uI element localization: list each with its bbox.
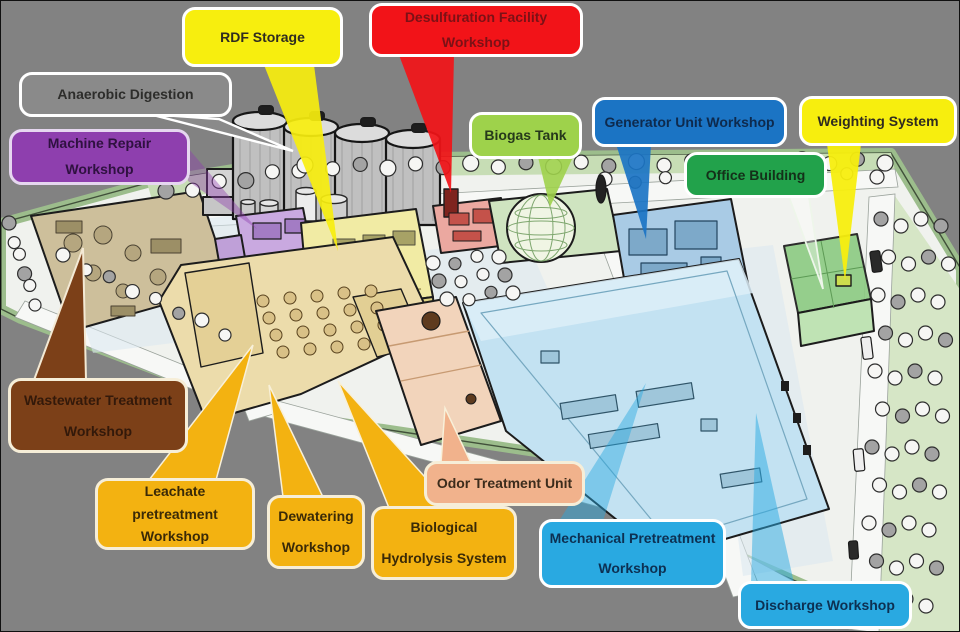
- truck: [861, 336, 874, 359]
- truck: [870, 250, 883, 272]
- callout-wastewater-treatment-workshop: Wastewater Treatment Workshop: [8, 378, 188, 453]
- callout-rdf-storage: RDF Storage: [182, 7, 343, 67]
- callout-office-building: Office Building: [684, 152, 827, 198]
- callout-anaerobic-digestion: Anaerobic Digestion: [19, 72, 232, 117]
- callout-leachate-pretreatment-workshop: Leachate pretreatment Workshop: [95, 478, 255, 550]
- truck: [848, 541, 858, 560]
- callout-dewatering-workshop: Dewatering Workshop: [267, 495, 365, 569]
- callout-discharge-workshop: Discharge Workshop: [738, 581, 912, 629]
- callout-mechanical-pretreatment-workshop: Mechanical Pretreatment Workshop: [539, 519, 726, 588]
- callout-biological-hydrolysis-system: Biological Hydrolysis System: [371, 506, 517, 580]
- cypress-tree: [596, 175, 606, 203]
- callout-desulfuration-facility-workshop: Desulfuration Facility Workshop: [369, 3, 583, 57]
- callout-machine-repair-workshop: Machine Repair Workshop: [9, 129, 190, 185]
- truck: [853, 449, 865, 472]
- callout-odor-treatment-unit: Odor Treatment Unit: [424, 461, 585, 506]
- facility-map: RDF Storage Desulfuration Facility Works…: [0, 0, 960, 632]
- callout-biogas-tank: Biogas Tank: [469, 112, 582, 159]
- callout-generator-unit-workshop: Generator Unit Workshop: [592, 97, 787, 147]
- callout-weighting-system: Weighting System: [799, 96, 957, 146]
